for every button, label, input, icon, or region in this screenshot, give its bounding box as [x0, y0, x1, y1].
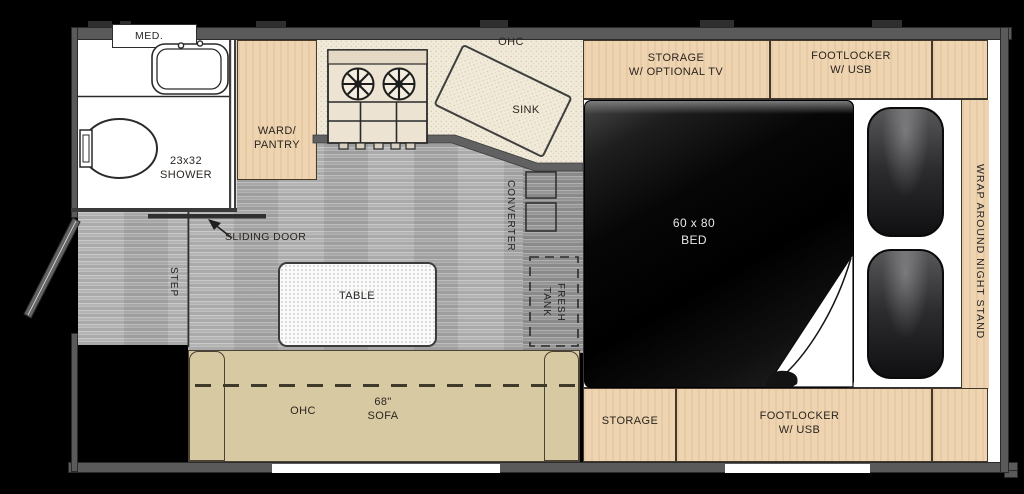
sliding-door-label: SLIDING DOOR: [225, 231, 340, 245]
sofa-ohc-label: OHC: [278, 405, 328, 419]
bathroom-bottom-wall: [71, 208, 237, 212]
storage-tv-label: STORAGE W/ OPTIONAL TV: [588, 52, 764, 79]
table-label: TABLE: [317, 290, 397, 304]
burner-icon: [343, 69, 374, 100]
sofa-label: 68" SOFA: [345, 396, 421, 423]
kitchen-ohc-label: OHC: [486, 36, 536, 50]
floorplan-canvas: MED.: [0, 0, 1024, 494]
burner-icon: [384, 69, 415, 100]
shower-label: 23x32 SHOWER: [131, 155, 241, 182]
footlocker-top-label: FOOTLOCKER W/ USB: [775, 50, 927, 77]
night-stand-label: WRAP AROUND NIGHT STAND: [961, 146, 987, 358]
bathroom-sink: [152, 41, 228, 94]
bed-label: 60 x 80 BED: [634, 215, 754, 249]
converter-label: CONVERTER: [502, 168, 517, 264]
fresh-tank-label: FRESH TANK: [537, 263, 567, 341]
bed-fold-corner: [766, 254, 853, 387]
converter-unit: [526, 172, 556, 231]
step-divider-line: [188, 212, 190, 347]
ward-pantry-label: WARD/ PANTRY: [237, 125, 317, 152]
footlocker-bottom-label: FOOTLOCKER W/ USB: [722, 410, 877, 437]
entry-door-open: [24, 218, 80, 318]
storage-bottom-label: STORAGE: [587, 415, 673, 429]
stove: [328, 50, 427, 149]
sink-label: SINK: [500, 104, 552, 118]
sliding-door-panel: [148, 214, 266, 219]
step-label: STEP: [165, 252, 180, 312]
bathroom-ward-wall: [229, 40, 231, 212]
bathroom-ward-wall: [234, 40, 236, 212]
